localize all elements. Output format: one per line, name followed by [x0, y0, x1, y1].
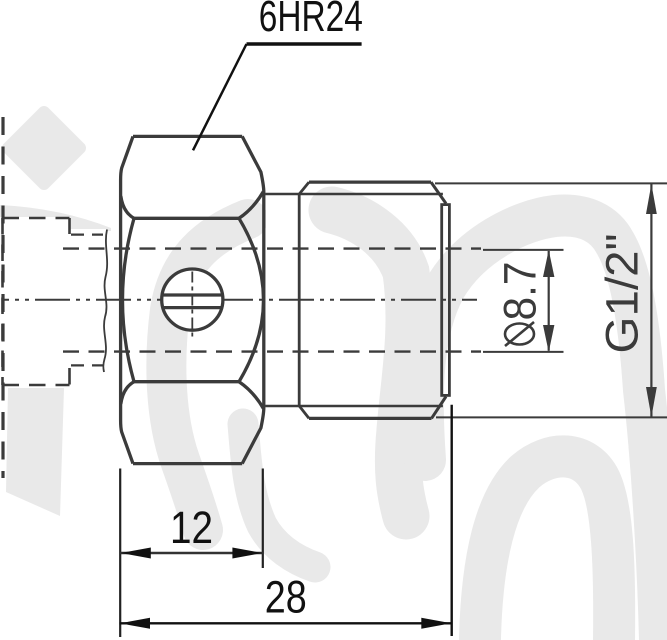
svg-text:8.7: 8.7: [495, 262, 546, 321]
svg-text:G1/2": G1/2": [596, 234, 647, 354]
svg-text:12: 12: [170, 502, 213, 553]
svg-text:6HR24: 6HR24: [259, 0, 363, 41]
svg-text:28: 28: [265, 572, 307, 623]
